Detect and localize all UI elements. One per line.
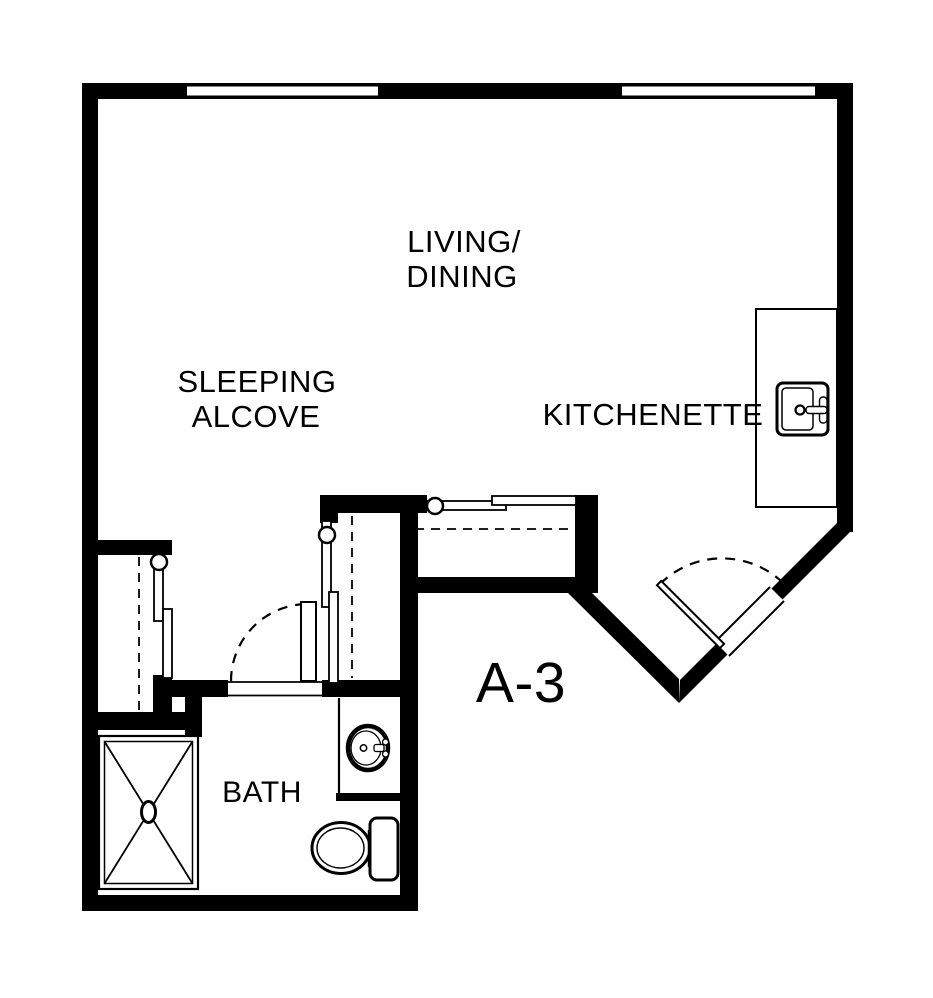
- toilet-icon: [312, 818, 398, 880]
- living-dining-label-line1: LIVING/: [407, 224, 521, 259]
- closet-right: [319, 516, 352, 683]
- kitchen-sink-icon: [777, 383, 828, 435]
- wall-left: [82, 83, 98, 911]
- unit-label: A-3: [476, 651, 566, 715]
- wall-left-jog: [82, 540, 172, 555]
- wall-notch: [172, 697, 185, 712]
- bath-counter-bottom: [336, 793, 404, 801]
- closet-left-slider-panel-b: [163, 609, 172, 678]
- bathroom-sink-icon: [336, 698, 404, 801]
- wall-diagonal-west: [568, 593, 679, 703]
- kitchen-faucet-handle: [806, 407, 827, 414]
- closet-hall: [415, 496, 576, 529]
- bath-sink-faucet: [374, 745, 384, 752]
- wall-right: [837, 83, 853, 532]
- window-left: [187, 87, 378, 96]
- wall-right-closet-stub: [320, 495, 338, 523]
- bath-sink-drain: [360, 745, 366, 751]
- shower-drain: [142, 802, 156, 823]
- living-dining-label-line2: DINING: [406, 259, 518, 294]
- floor-plan-drawing: LIVING/ DINING SLEEPING ALCOVE KITCHENET…: [0, 0, 933, 998]
- wall-bottom: [82, 895, 418, 911]
- bath-label: BATH: [222, 776, 302, 809]
- bath-sink-knob-1: [383, 739, 389, 745]
- toilet-tank: [370, 818, 398, 880]
- sleeping-alcove-label-line2: ALCOVE: [192, 399, 321, 434]
- sleeping-alcove-label-line1: SLEEPING: [177, 364, 336, 399]
- closet-left-knob-icon: [151, 554, 167, 570]
- wall-mid-column: [400, 513, 418, 911]
- entry-door-opening: [715, 587, 784, 656]
- bath-door-swing-arc: [231, 604, 306, 681]
- shower-icon: [99, 736, 198, 889]
- closet-right-slider-panel-b: [329, 592, 338, 683]
- closet-hall-slider-panel-b: [492, 496, 576, 505]
- bath-door: [228, 602, 322, 697]
- bath-door-panel: [301, 602, 316, 681]
- bath-sink-knob-2: [383, 751, 389, 757]
- closet-hall-knob-icon: [427, 498, 443, 514]
- room-labels: LIVING/ DINING SLEEPING ALCOVE KITCHENET…: [177, 224, 763, 809]
- kitchenette-label: KITCHENETTE: [543, 397, 764, 432]
- closet-right-knob-icon: [319, 527, 335, 543]
- wall-hall-closet-bottom: [400, 577, 592, 593]
- kitchen-faucet-base: [796, 406, 805, 415]
- floor-plan: LIVING/ DINING SLEEPING ALCOVE KITCHENET…: [0, 0, 933, 998]
- wall-left-closet-bottom: [82, 712, 202, 730]
- window-right: [622, 87, 815, 96]
- entry-door-swing-arc: [660, 558, 781, 584]
- entry-door: [657, 558, 784, 656]
- toilet-bowl: [312, 823, 370, 874]
- entry-door-panel: [657, 581, 724, 648]
